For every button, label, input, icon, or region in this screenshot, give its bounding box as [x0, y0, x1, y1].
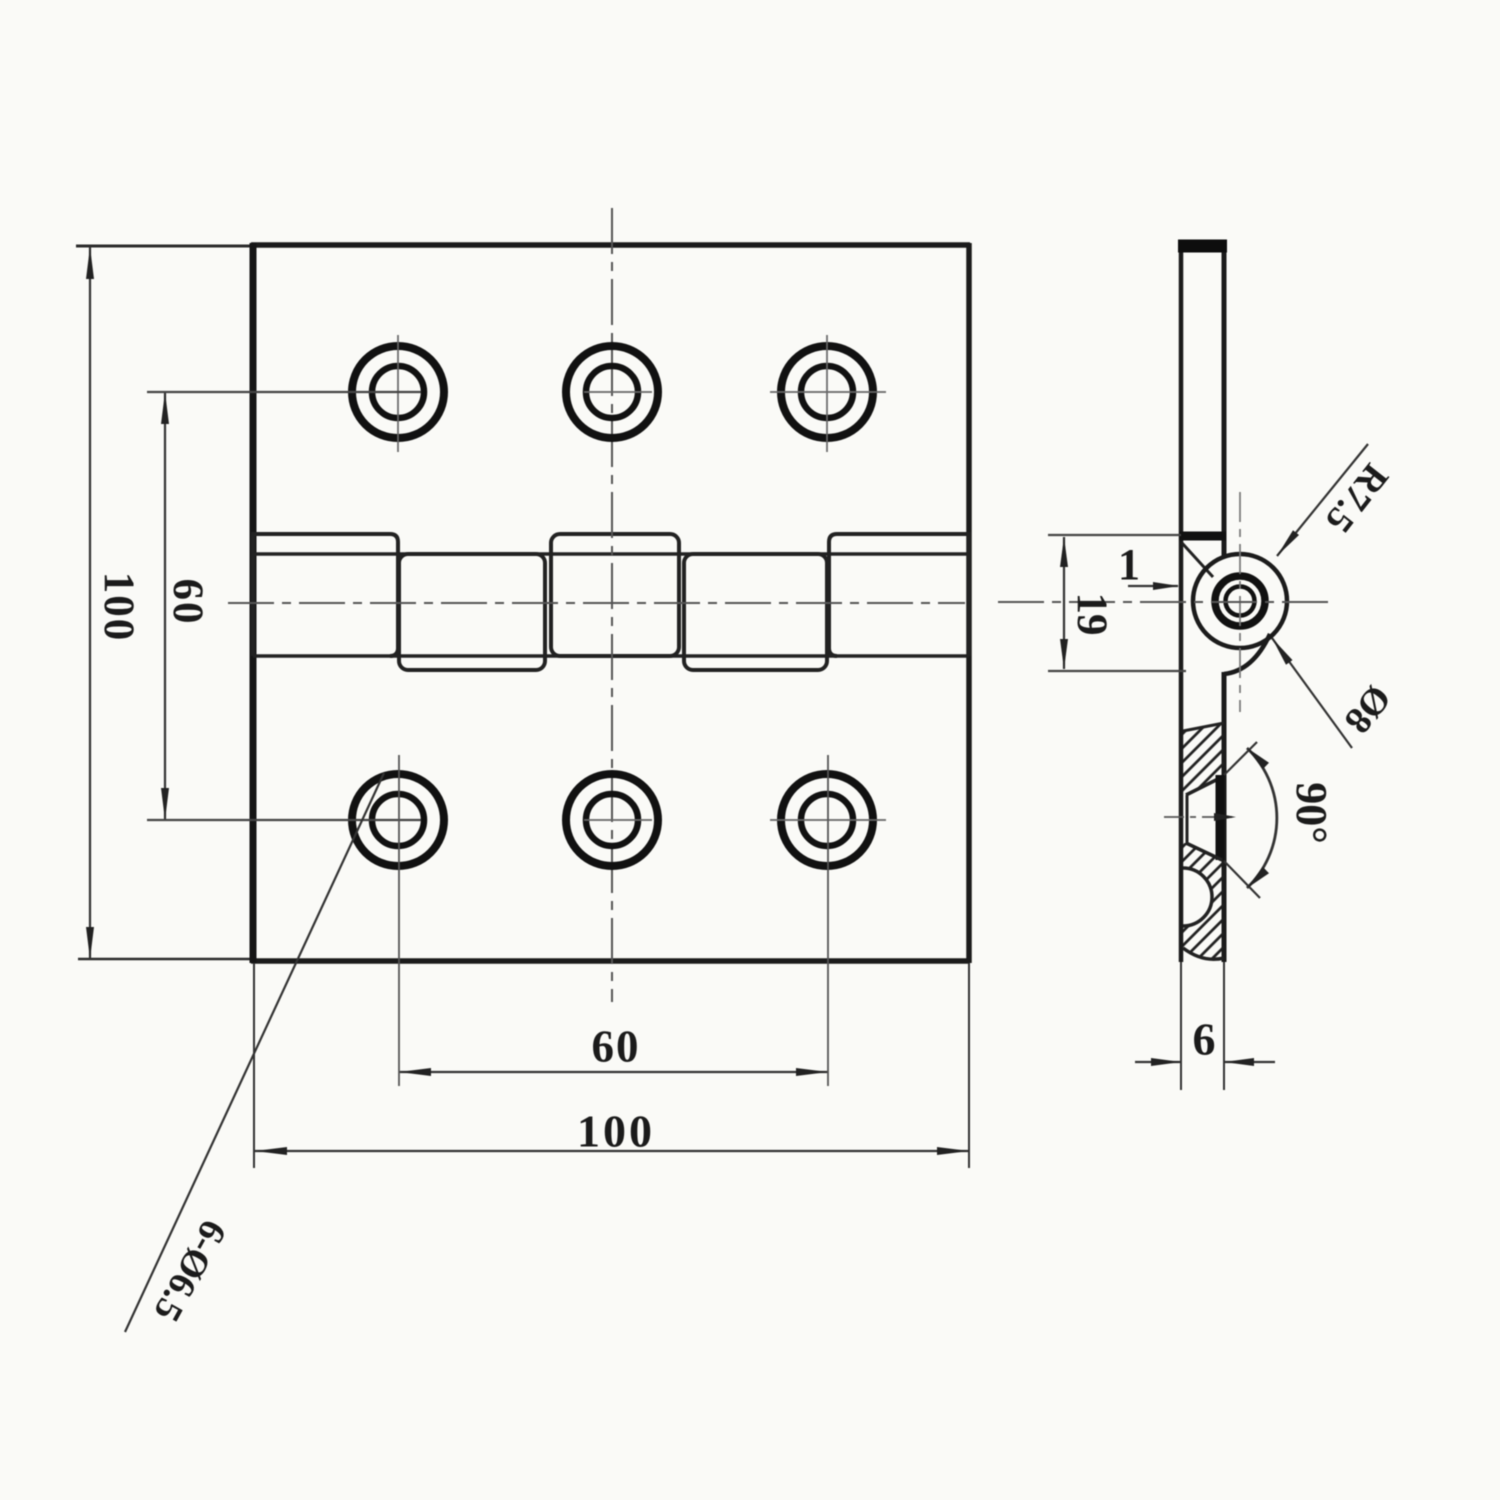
svg-text:6-Ø6.5: 6-Ø6.5: [145, 1213, 234, 1328]
svg-text:90°: 90°: [1287, 782, 1336, 844]
svg-text:60: 60: [592, 1021, 641, 1071]
svg-text:19: 19: [1068, 593, 1115, 636]
svg-text:R7.5: R7.5: [1317, 456, 1396, 541]
svg-text:6: 6: [1193, 1014, 1216, 1065]
svg-text:100: 100: [577, 1106, 655, 1157]
svg-text:Ø8: Ø8: [1336, 677, 1399, 741]
svg-text:60: 60: [164, 579, 211, 626]
svg-text:100: 100: [95, 572, 142, 643]
svg-text:1: 1: [1118, 540, 1140, 589]
